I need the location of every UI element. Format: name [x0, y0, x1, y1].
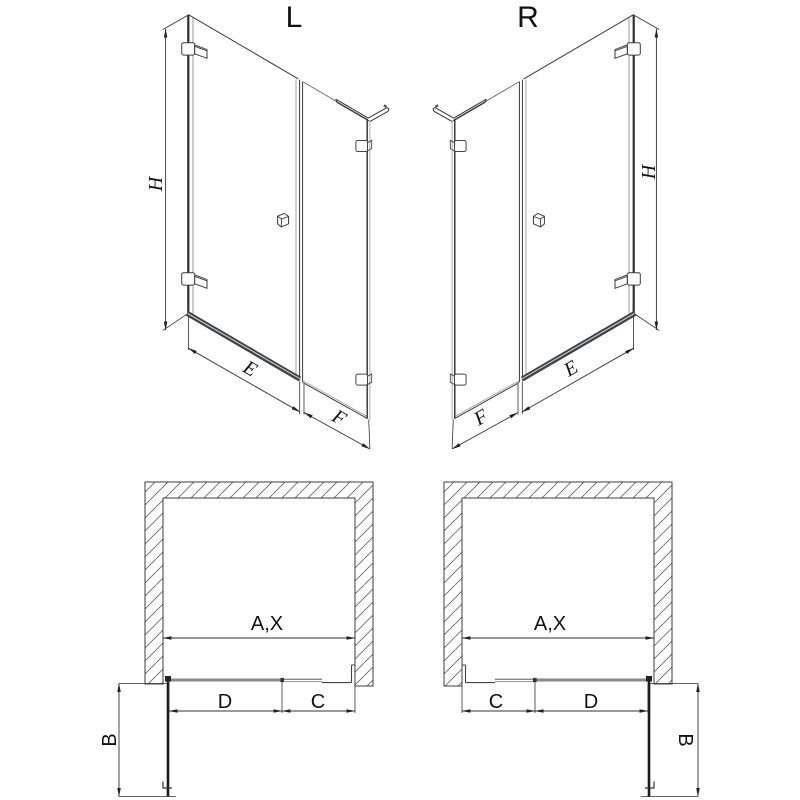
dim-label-h-left: H — [145, 175, 167, 192]
elevation-left-art — [163, 15, 389, 449]
plan-right-wall-band — [444, 482, 672, 686]
view-title-right: R — [517, 1, 539, 34]
plan-view-left: A,X D C B — [99, 482, 373, 797]
dim-label-e-left: E — [238, 356, 260, 382]
dim-label-d-left: D — [218, 691, 232, 713]
dim-label-e-right: E — [559, 356, 581, 382]
dim-label-b-left: B — [99, 733, 121, 746]
view-title-left: L — [286, 1, 303, 34]
dim-label-h-right: H — [638, 163, 660, 180]
dim-label-ax-left: A,X — [251, 613, 283, 635]
plan-left-wall-band — [145, 482, 373, 686]
dim-label-c-left: C — [311, 691, 325, 713]
elevation-view-left: L H E F — [145, 1, 389, 449]
dim-label-f-right: F — [469, 405, 492, 431]
diagram-canvas: L H E F R H E F A,X D C B A,X C D B — [0, 0, 800, 800]
plan-view-right: A,X C D B — [444, 482, 698, 797]
dim-label-b-right: B — [674, 733, 696, 746]
dim-label-c-right: C — [489, 691, 503, 713]
elevation-right-art — [433, 15, 659, 449]
dim-label-ax-right: A,X — [534, 613, 566, 635]
shower-enclosure-technical-drawing: L H E F R H E F A,X D C B A,X C D B — [0, 0, 800, 800]
dim-label-d-right: D — [584, 691, 598, 713]
elevation-view-right: R H E F — [433, 1, 660, 449]
